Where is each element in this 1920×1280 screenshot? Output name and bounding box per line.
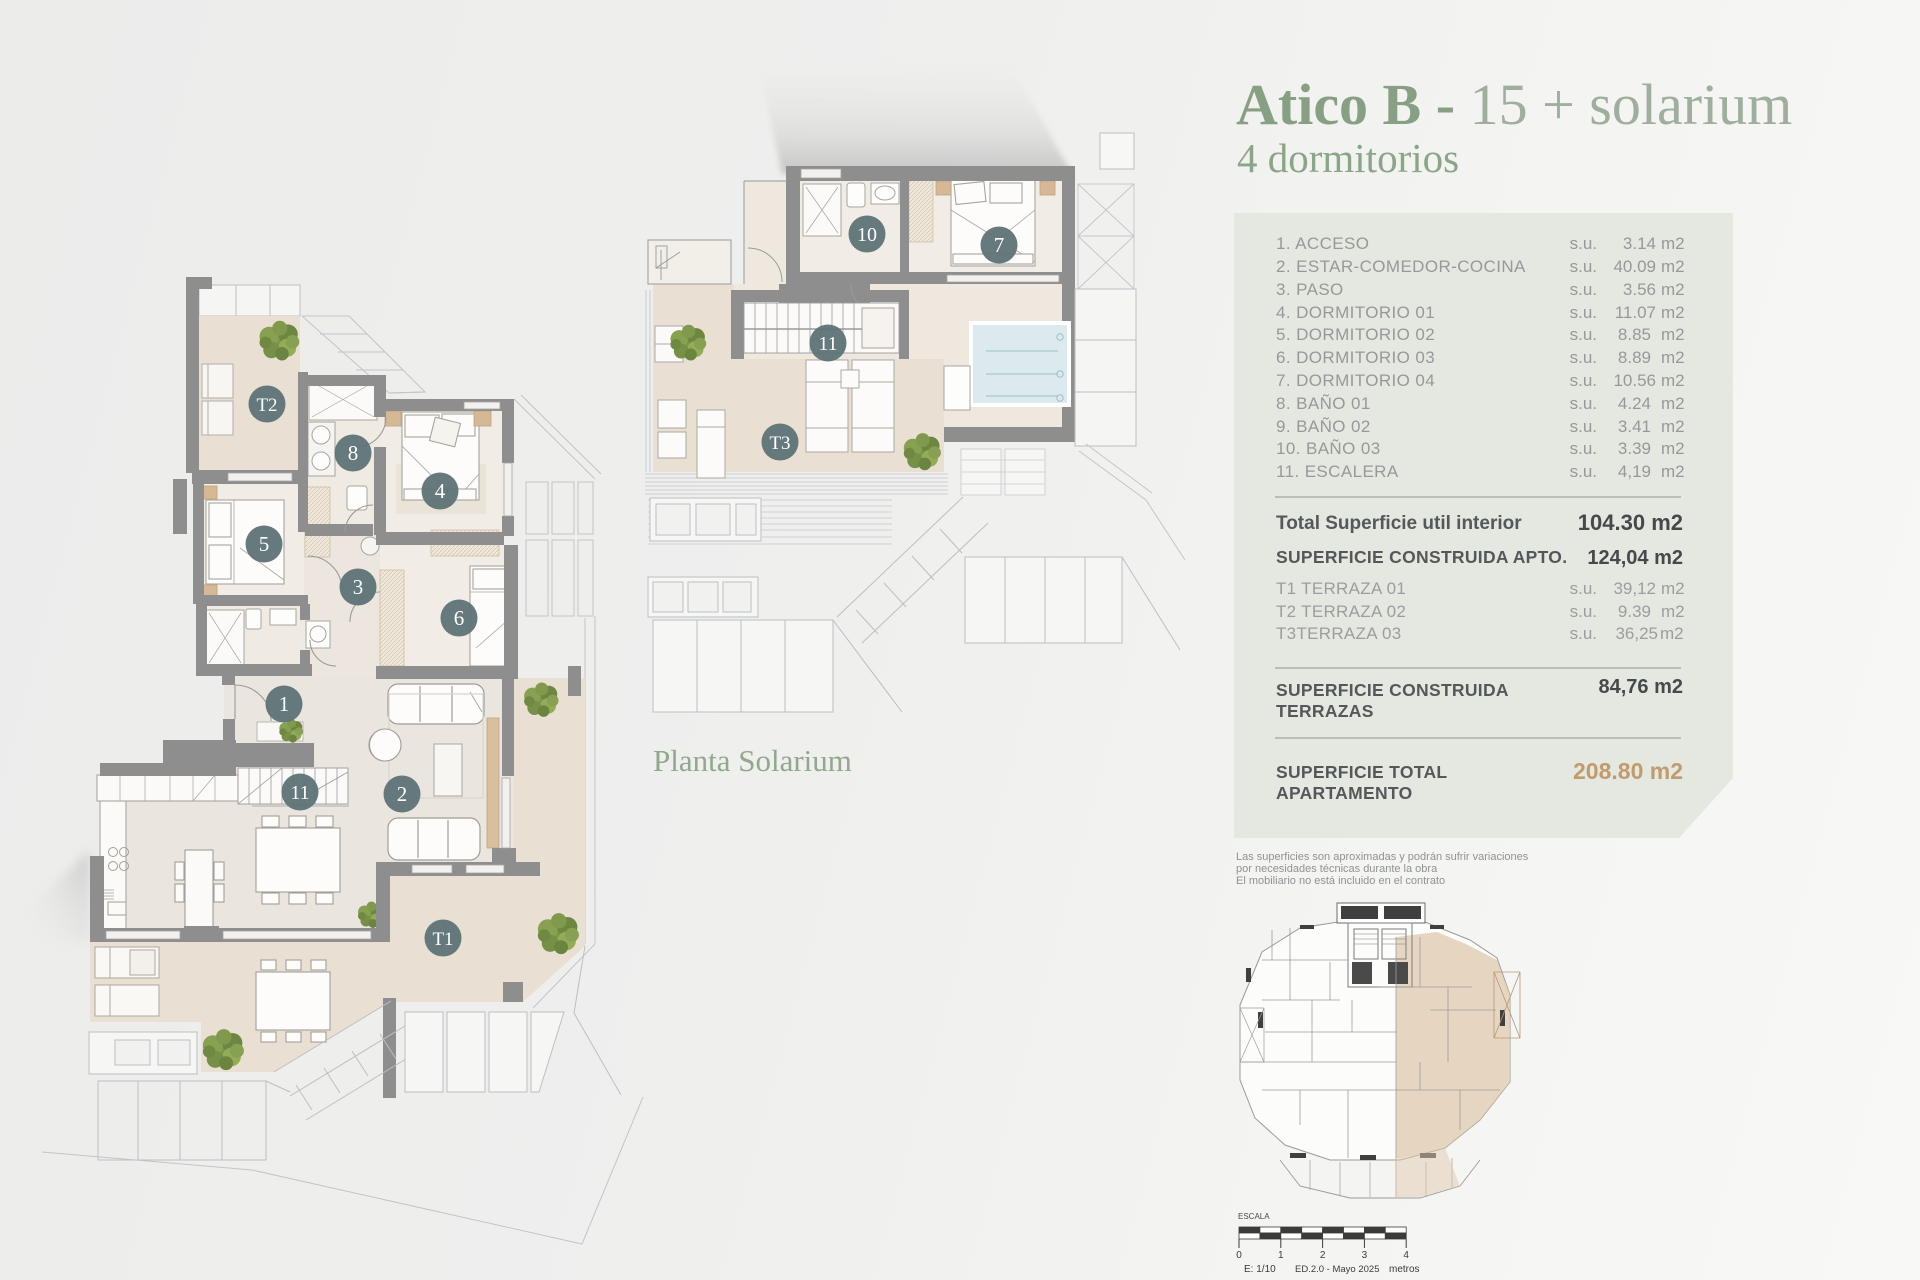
svg-text:5. DORMITORIO 02: 5. DORMITORIO 02 <box>1276 325 1435 344</box>
svg-text:SUPERFICIE CONSTRUIDA: SUPERFICIE CONSTRUIDA <box>1276 680 1509 700</box>
svg-text:6. DORMITORIO 03: 6. DORMITORIO 03 <box>1276 348 1435 367</box>
svg-text:124,04 m2: 124,04 m2 <box>1587 547 1683 569</box>
svg-text:11: 11 <box>290 782 309 804</box>
svg-text:4. DORMITORIO 01: 4. DORMITORIO 01 <box>1276 303 1435 322</box>
svg-text:s.u.: s.u. <box>1570 579 1597 598</box>
svg-text:ESCALA: ESCALA <box>1238 1212 1270 1221</box>
svg-text:3.56: 3.56 <box>1623 280 1656 299</box>
svg-text:10: 10 <box>857 224 877 246</box>
svg-text:m2: m2 <box>1661 325 1685 344</box>
svg-text:m2: m2 <box>1661 602 1685 621</box>
svg-text:4 dormitorios: 4 dormitorios <box>1237 135 1459 181</box>
svg-text:3.14: 3.14 <box>1623 234 1656 253</box>
svg-text:Planta Solarium: Planta Solarium <box>653 743 852 778</box>
svg-text:m2: m2 <box>1661 462 1685 481</box>
svg-text:s.u.: s.u. <box>1570 462 1597 481</box>
svg-text:3. PASO: 3. PASO <box>1276 280 1344 299</box>
svg-text:6: 6 <box>454 606 465 630</box>
svg-text:m2: m2 <box>1661 303 1685 322</box>
svg-text:s.u.: s.u. <box>1570 602 1597 621</box>
svg-text:m2: m2 <box>1661 579 1685 598</box>
svg-text:4,19: 4,19 <box>1618 462 1651 481</box>
svg-text:APARTAMENTO: APARTAMENTO <box>1276 783 1413 803</box>
svg-text:208.80 m2: 208.80 m2 <box>1573 758 1683 784</box>
svg-text:s.u.: s.u. <box>1570 371 1597 390</box>
svg-text:s.u.: s.u. <box>1570 394 1597 413</box>
svg-text:s.u.: s.u. <box>1570 257 1597 276</box>
svg-text:3.39: 3.39 <box>1618 439 1651 458</box>
svg-text:m2: m2 <box>1661 280 1685 299</box>
svg-text:m2: m2 <box>1661 417 1685 436</box>
svg-text:T2: T2 <box>256 395 277 416</box>
svg-text:1. ACCESO: 1. ACCESO <box>1276 234 1369 253</box>
svg-text:10.56: 10.56 <box>1613 371 1656 390</box>
svg-text:11.07: 11.07 <box>1615 303 1656 322</box>
svg-text:4.24: 4.24 <box>1618 394 1651 413</box>
svg-text:3: 3 <box>353 575 364 599</box>
svg-text:m2: m2 <box>1661 439 1685 458</box>
svg-text:10. BAÑO 03: 10. BAÑO 03 <box>1276 439 1381 458</box>
svg-text:3.41: 3.41 <box>1618 417 1651 436</box>
svg-text:SUPERFICIE TOTAL: SUPERFICIE TOTAL <box>1276 762 1447 782</box>
svg-text:8. BAÑO 01: 8. BAÑO 01 <box>1276 394 1371 413</box>
svg-text:39,12: 39,12 <box>1613 579 1656 598</box>
svg-text:5: 5 <box>259 532 270 556</box>
svg-text:El mobiliario no está incluido: El mobiliario no está incluido en el con… <box>1236 875 1445 887</box>
svg-text:8.85: 8.85 <box>1618 325 1651 344</box>
svg-text:T1: T1 <box>432 929 453 950</box>
svg-text:TERRAZAS: TERRAZAS <box>1276 701 1374 721</box>
svg-text:s.u.: s.u. <box>1570 303 1597 322</box>
svg-text:84,76 m2: 84,76 m2 <box>1598 676 1683 698</box>
svg-text:E: 1/10: E: 1/10 <box>1244 1264 1276 1275</box>
svg-text:9.39: 9.39 <box>1618 602 1651 621</box>
svg-text:11: 11 <box>818 333 837 355</box>
svg-text:s.u.: s.u. <box>1570 624 1597 643</box>
svg-text:7. DORMITORIO 04: 7. DORMITORIO 04 <box>1276 371 1435 390</box>
svg-text:metros: metros <box>1389 1264 1420 1275</box>
svg-text:T1 TERRAZA 01: T1 TERRAZA 01 <box>1276 579 1406 598</box>
svg-text:s.u.: s.u. <box>1570 280 1597 299</box>
svg-text:T2 TERRAZA 02: T2 TERRAZA 02 <box>1276 602 1406 621</box>
svg-text:s.u.: s.u. <box>1570 234 1597 253</box>
svg-text:m2: m2 <box>1661 234 1685 253</box>
svg-text:2: 2 <box>1320 1250 1326 1261</box>
svg-text:4: 4 <box>435 479 446 503</box>
svg-text:4: 4 <box>1403 1250 1409 1261</box>
svg-text:3: 3 <box>1362 1250 1368 1261</box>
svg-text:s.u.: s.u. <box>1570 325 1597 344</box>
svg-text:T3TERRAZA 03: T3TERRAZA 03 <box>1276 624 1401 643</box>
svg-text:0: 0 <box>1236 1250 1242 1261</box>
svg-text:SUPERFICIE CONSTRUIDA APTO.: SUPERFICIE CONSTRUIDA APTO. <box>1276 547 1567 567</box>
svg-text:2. ESTAR-COMEDOR-COCINA: 2. ESTAR-COMEDOR-COCINA <box>1276 257 1526 276</box>
svg-text:11. ESCALERA: 11. ESCALERA <box>1276 462 1399 481</box>
svg-text:T3: T3 <box>769 433 790 454</box>
svg-text:1: 1 <box>1278 1250 1284 1261</box>
svg-text:40.09: 40.09 <box>1613 257 1656 276</box>
svg-text:s.u.: s.u. <box>1570 417 1597 436</box>
svg-text:8: 8 <box>348 441 359 465</box>
svg-text:1: 1 <box>279 692 290 716</box>
svg-text:s.u.: s.u. <box>1570 439 1597 458</box>
svg-text:m2: m2 <box>1660 624 1684 643</box>
svg-text:ED.2.0 - Mayo 2025: ED.2.0 - Mayo 2025 <box>1295 1264 1380 1275</box>
svg-text:por necesidades técnicas duran: por necesidades técnicas durante la obra <box>1236 863 1438 875</box>
svg-text:Total Superficie util interior: Total Superficie util interior <box>1276 513 1522 534</box>
svg-text:36,25: 36,25 <box>1615 624 1658 643</box>
svg-text:s.u.: s.u. <box>1570 348 1597 367</box>
svg-text:Las superficies son aproximada: Las superficies son aproximadas y podrán… <box>1236 851 1529 863</box>
svg-text:8.89: 8.89 <box>1618 348 1651 367</box>
svg-text:9. BAÑO 02: 9. BAÑO 02 <box>1276 417 1371 436</box>
svg-text:104.30 m2: 104.30 m2 <box>1578 510 1683 535</box>
svg-text:m2: m2 <box>1661 348 1685 367</box>
svg-text:2: 2 <box>397 782 408 806</box>
svg-text:m2: m2 <box>1661 257 1685 276</box>
svg-text:7: 7 <box>994 233 1005 257</box>
svg-text:m2: m2 <box>1661 371 1685 390</box>
svg-text:m2: m2 <box>1661 394 1685 413</box>
svg-text:Atico B - 15 + solarium: Atico B - 15 + solarium <box>1236 72 1792 137</box>
